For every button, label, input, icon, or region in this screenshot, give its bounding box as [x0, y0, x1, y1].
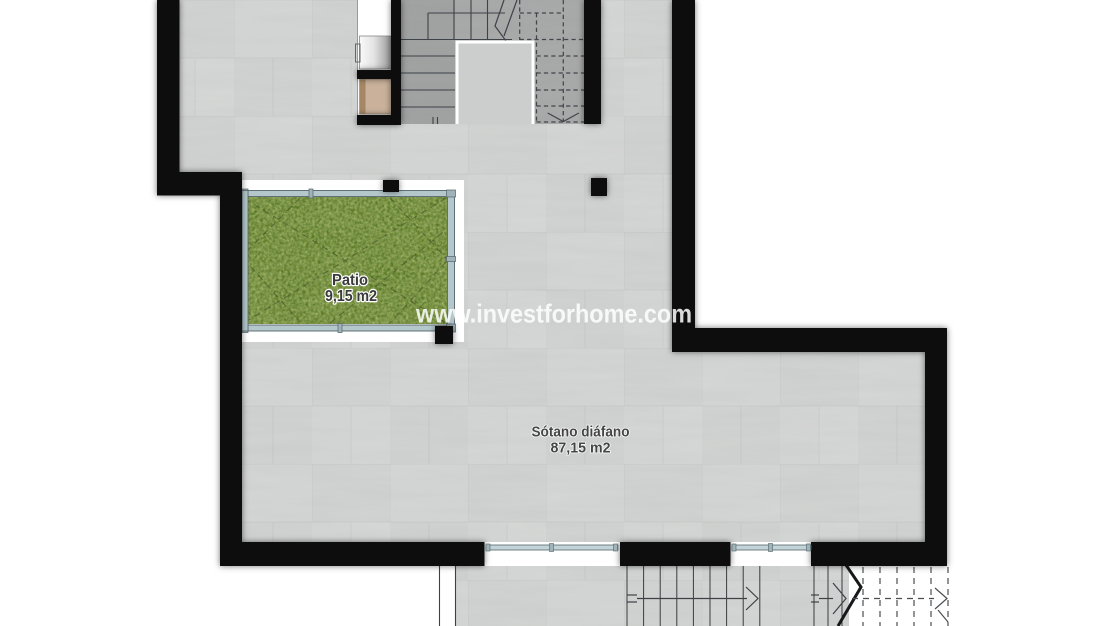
svg-text:www.investforhome.com: www.investforhome.com [415, 299, 692, 329]
svg-text:Sótano diáfano: Sótano diáfano [532, 424, 630, 441]
svg-text:9,15 m2: 9,15 m2 [325, 288, 377, 305]
svg-text:Patio: Patio [332, 272, 368, 289]
svg-text:87,15 m2: 87,15 m2 [551, 440, 611, 457]
